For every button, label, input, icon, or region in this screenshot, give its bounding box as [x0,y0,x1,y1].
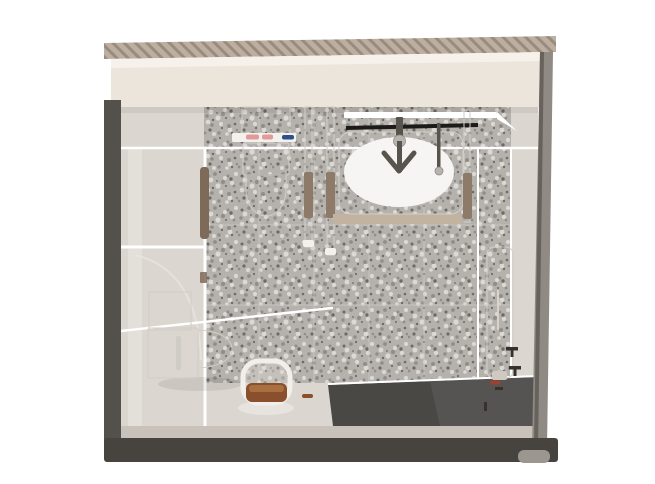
grab-pole-1-base [303,240,314,247]
toiletry-item-pink-1 [246,135,259,140]
floor-drain-mark [302,394,313,398]
grab-pole-2-base [325,248,336,255]
toilet-second-slot [176,336,181,370]
vanity-rod [437,123,441,170]
heater-cap [492,371,507,380]
bathroom-pod-top-view [0,0,655,484]
floor-dark-tray-sheen [430,377,538,426]
counter-front-edge [333,214,462,224]
towel-hook-2-bar [509,366,521,370]
red-accent-item [490,381,500,385]
vanity-rod-base [435,167,443,175]
wall-bottom-inner-band [121,426,538,438]
toiletry-item-pink-2 [262,135,273,140]
door-latch [200,272,207,283]
towel-hook-1-bar [506,347,518,351]
wall-bottom [104,438,558,462]
towel-hook-2-stem [514,369,517,376]
grab-pole-2-grip [326,172,335,218]
toilet-second-shadow [158,377,242,391]
heater-detail-line [497,290,499,330]
wall-left [104,100,121,448]
grab-pole-3-grip [463,173,472,219]
mirror-shelf-edge [344,112,497,118]
toiletry-item-blue [282,135,294,140]
floor-hook-mark [495,387,503,390]
stool-seat-highlight [249,385,284,392]
glass-door-handle [200,167,209,239]
shower-glass-sheen [128,148,142,426]
wall-hook-mark [484,402,487,411]
towel-hook-1-stem [511,350,514,357]
bathroom-render-canvas [0,0,655,484]
pod-support-foot [518,450,550,463]
grab-pole-1-grip [304,172,313,218]
